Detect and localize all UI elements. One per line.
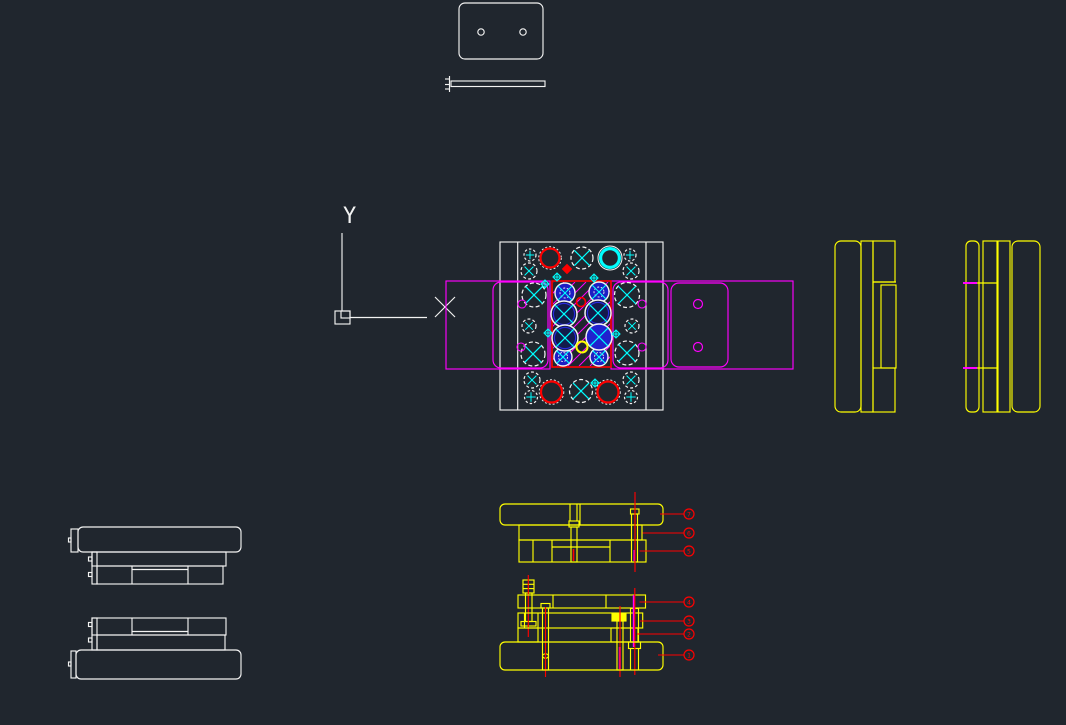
red-hole-circle xyxy=(541,249,560,268)
outline-rect xyxy=(69,538,72,542)
hole-circle xyxy=(694,343,703,352)
ucs-y-axis-label: Y xyxy=(343,204,356,229)
redS-marker xyxy=(577,298,586,307)
boltM-marker xyxy=(524,372,540,388)
outline-rect xyxy=(97,635,225,650)
clearance-circle xyxy=(596,380,621,405)
outline-rect xyxy=(71,651,76,678)
outline-rect xyxy=(76,650,241,679)
boltS-marker xyxy=(525,391,538,404)
boltS-marker xyxy=(625,391,638,404)
outline-rect xyxy=(89,623,93,627)
bigcoreB-marker xyxy=(586,324,612,350)
small-yellow-circle xyxy=(577,342,588,353)
core-marker xyxy=(555,283,575,303)
side-view-yellow-left xyxy=(835,241,896,412)
diamond-marker xyxy=(563,265,572,274)
outline-rect xyxy=(71,529,78,552)
drawing-viewport[interactable]: Y 765 4321 xyxy=(0,0,1066,725)
outline-rect xyxy=(89,638,93,642)
outline-rect xyxy=(518,595,646,608)
top-part-view xyxy=(445,3,545,92)
balloon-4: 4 xyxy=(640,597,695,607)
magentaS-marker xyxy=(638,300,646,308)
boltM-marker xyxy=(521,263,537,279)
cyanx-marker xyxy=(570,380,593,403)
small-magenta-circle xyxy=(638,300,646,308)
boltS-marker xyxy=(624,249,636,261)
hatch-line xyxy=(469,282,553,366)
bigcore-marker xyxy=(585,300,611,326)
balloon-number: 4 xyxy=(687,598,691,606)
bigcore-marker xyxy=(552,325,578,351)
outline-rect xyxy=(519,540,646,562)
section-view-lower-half: 4321 xyxy=(500,575,694,677)
reddiamond-marker xyxy=(563,265,572,274)
ucs-icon: Y xyxy=(335,204,455,324)
boltS-marker xyxy=(524,249,536,261)
yellowS-marker xyxy=(577,342,588,353)
magentaS-marker xyxy=(518,300,526,308)
boltM-marker xyxy=(623,372,639,388)
magentaS-marker xyxy=(638,343,646,351)
balloon-number: 6 xyxy=(687,529,691,537)
outline-rect xyxy=(78,527,241,552)
outline-rect xyxy=(92,552,97,584)
outline-rect xyxy=(873,241,895,282)
outline-rect xyxy=(92,618,97,650)
outline-rect xyxy=(89,573,93,577)
outline-rect xyxy=(341,311,350,318)
hatch-line xyxy=(601,282,685,366)
balloon-6: 6 xyxy=(643,528,695,538)
outline-rect xyxy=(861,241,873,412)
outline-rect xyxy=(92,552,226,566)
small-red-circle xyxy=(577,298,586,307)
side-view-yellow-right xyxy=(963,241,1040,412)
outline-rect xyxy=(966,241,979,412)
red-hole-circle xyxy=(541,382,562,403)
redring-marker xyxy=(539,380,564,405)
cyanring-marker xyxy=(598,246,622,270)
small-magenta-circle xyxy=(638,343,646,351)
boltM-marker xyxy=(625,319,639,333)
hole-circle xyxy=(478,29,484,35)
outline-rect xyxy=(459,3,543,59)
cyanx-marker xyxy=(615,283,640,308)
hole-circle xyxy=(694,300,703,309)
outline-rect xyxy=(92,618,226,635)
clearance-circle xyxy=(539,247,562,270)
cyandiamond-marker xyxy=(544,329,552,337)
section-view-upper-half: 765 xyxy=(500,492,694,572)
front-views-white xyxy=(69,527,242,679)
balloon-number: 1 xyxy=(687,651,691,659)
balloon-7: 7 xyxy=(660,509,694,519)
redring-marker xyxy=(596,380,621,405)
balloon-number: 2 xyxy=(687,630,691,638)
outline-rect xyxy=(835,241,861,412)
outline-rect xyxy=(613,282,668,368)
hatch-group xyxy=(469,282,685,366)
cyanx-marker xyxy=(615,341,639,365)
balloon-2: 2 xyxy=(637,629,694,639)
cyandiamond-marker xyxy=(553,273,561,281)
cyanx-marker xyxy=(571,247,593,269)
outline-rect xyxy=(89,557,93,561)
hole-circle xyxy=(520,29,526,35)
cad-model-space[interactable]: Y 765 4321 xyxy=(0,0,1066,725)
core-marker xyxy=(589,282,609,302)
outline-rect xyxy=(97,566,223,584)
balloon-5: 5 xyxy=(640,546,695,556)
boltM-marker xyxy=(623,263,639,279)
redring-marker xyxy=(539,247,562,270)
balloon-3: 3 xyxy=(640,616,694,626)
balloon-number: 7 xyxy=(687,510,691,518)
red-hole-circle xyxy=(598,382,619,403)
balloon-number: 3 xyxy=(687,617,691,625)
bigcore-marker xyxy=(551,301,577,327)
clearance-circle xyxy=(539,380,564,405)
outline-rect xyxy=(873,368,895,412)
outline-rect xyxy=(983,241,997,412)
outline-rect xyxy=(69,662,72,666)
outline-rect xyxy=(612,614,626,621)
outline-rect xyxy=(881,285,896,368)
outline-rect xyxy=(519,525,642,540)
small-magenta-circle xyxy=(518,300,526,308)
boltM-marker xyxy=(522,319,536,333)
outline-rect xyxy=(451,81,545,87)
outline-rect xyxy=(569,521,579,527)
plan-view-mold-assembly xyxy=(446,242,793,410)
outline-rect xyxy=(671,283,728,367)
balloon-number: 5 xyxy=(687,547,691,555)
bushing-ring xyxy=(601,249,620,268)
outline-rect xyxy=(1012,241,1040,412)
outline-rect xyxy=(998,241,1010,412)
